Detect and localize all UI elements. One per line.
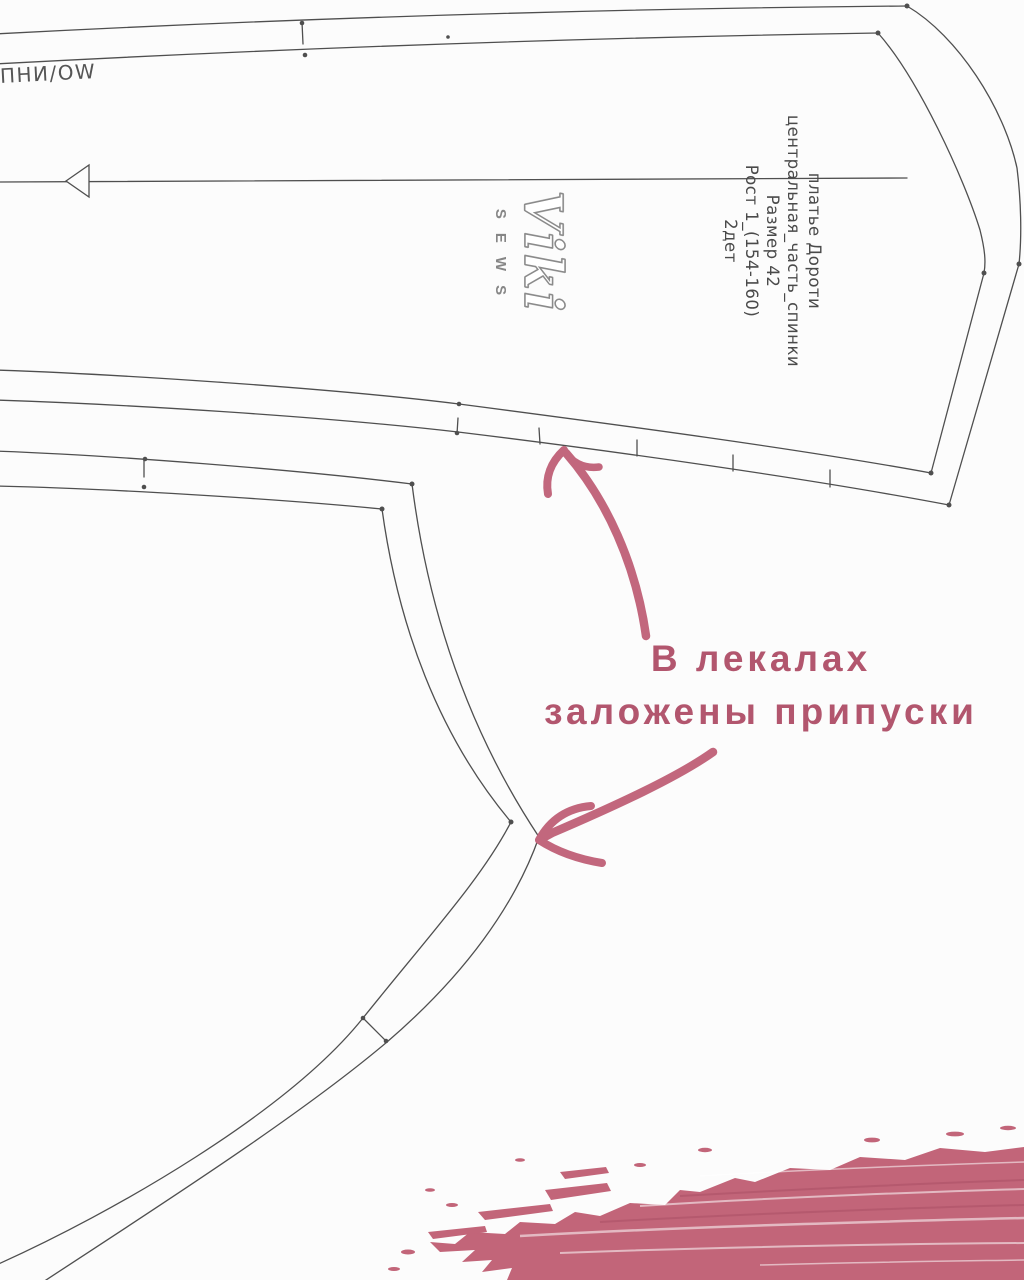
pattern-piece-label: платье Дороти центральная_часть_спинки Р… [715,106,825,376]
lower-cut-convex-edge [40,837,539,1280]
label-garment: платье Дороти [804,106,825,376]
top-edge-notch [302,22,303,44]
upper-cut-top-edge [0,6,907,34]
arrow-up-icon [547,450,646,636]
upper-seam-hem-edge [0,370,931,473]
lower-seam-top-edge [0,486,382,509]
upper-seam-top-edge [0,33,878,64]
viki-sews-logo: Viki SEWS [459,186,571,318]
lower-seam-convex-edge [0,822,511,1266]
label-size: Размер 42 [762,106,783,376]
lower-side-notch [363,1018,386,1041]
label-piece: центральная_часть_спинки [783,106,804,376]
grainline-triangle-icon [66,165,89,197]
arrow-down-left-icon [539,752,713,863]
edge-label-zipper: ПНИ/ОW [0,59,97,88]
annotation-line-2: заложены припуски [380,685,1024,738]
brush-stroke [388,1126,1024,1280]
upper-seam-right-edge [878,33,985,473]
upper-piece-dots [300,4,1022,508]
logo-word-text: SEWS [492,186,509,318]
annotation-heading: В лекалах заложены припуски [380,632,1024,738]
sewing-pattern-page: ПНИ/ОW платье Дороти центральная_часть_с… [0,0,1024,1280]
lower-cut-top-edge [0,451,412,484]
lower-piece-dots [142,457,542,1044]
lower-pattern-piece [0,451,541,1280]
upper-cut-right-edge [907,6,1021,505]
annotation-line-1: В лекалах [380,632,1024,685]
label-quantity: 2дет [720,106,741,376]
logo-script-text: Viki [513,186,571,318]
label-height: Рост 1_(154-160) [741,106,762,376]
